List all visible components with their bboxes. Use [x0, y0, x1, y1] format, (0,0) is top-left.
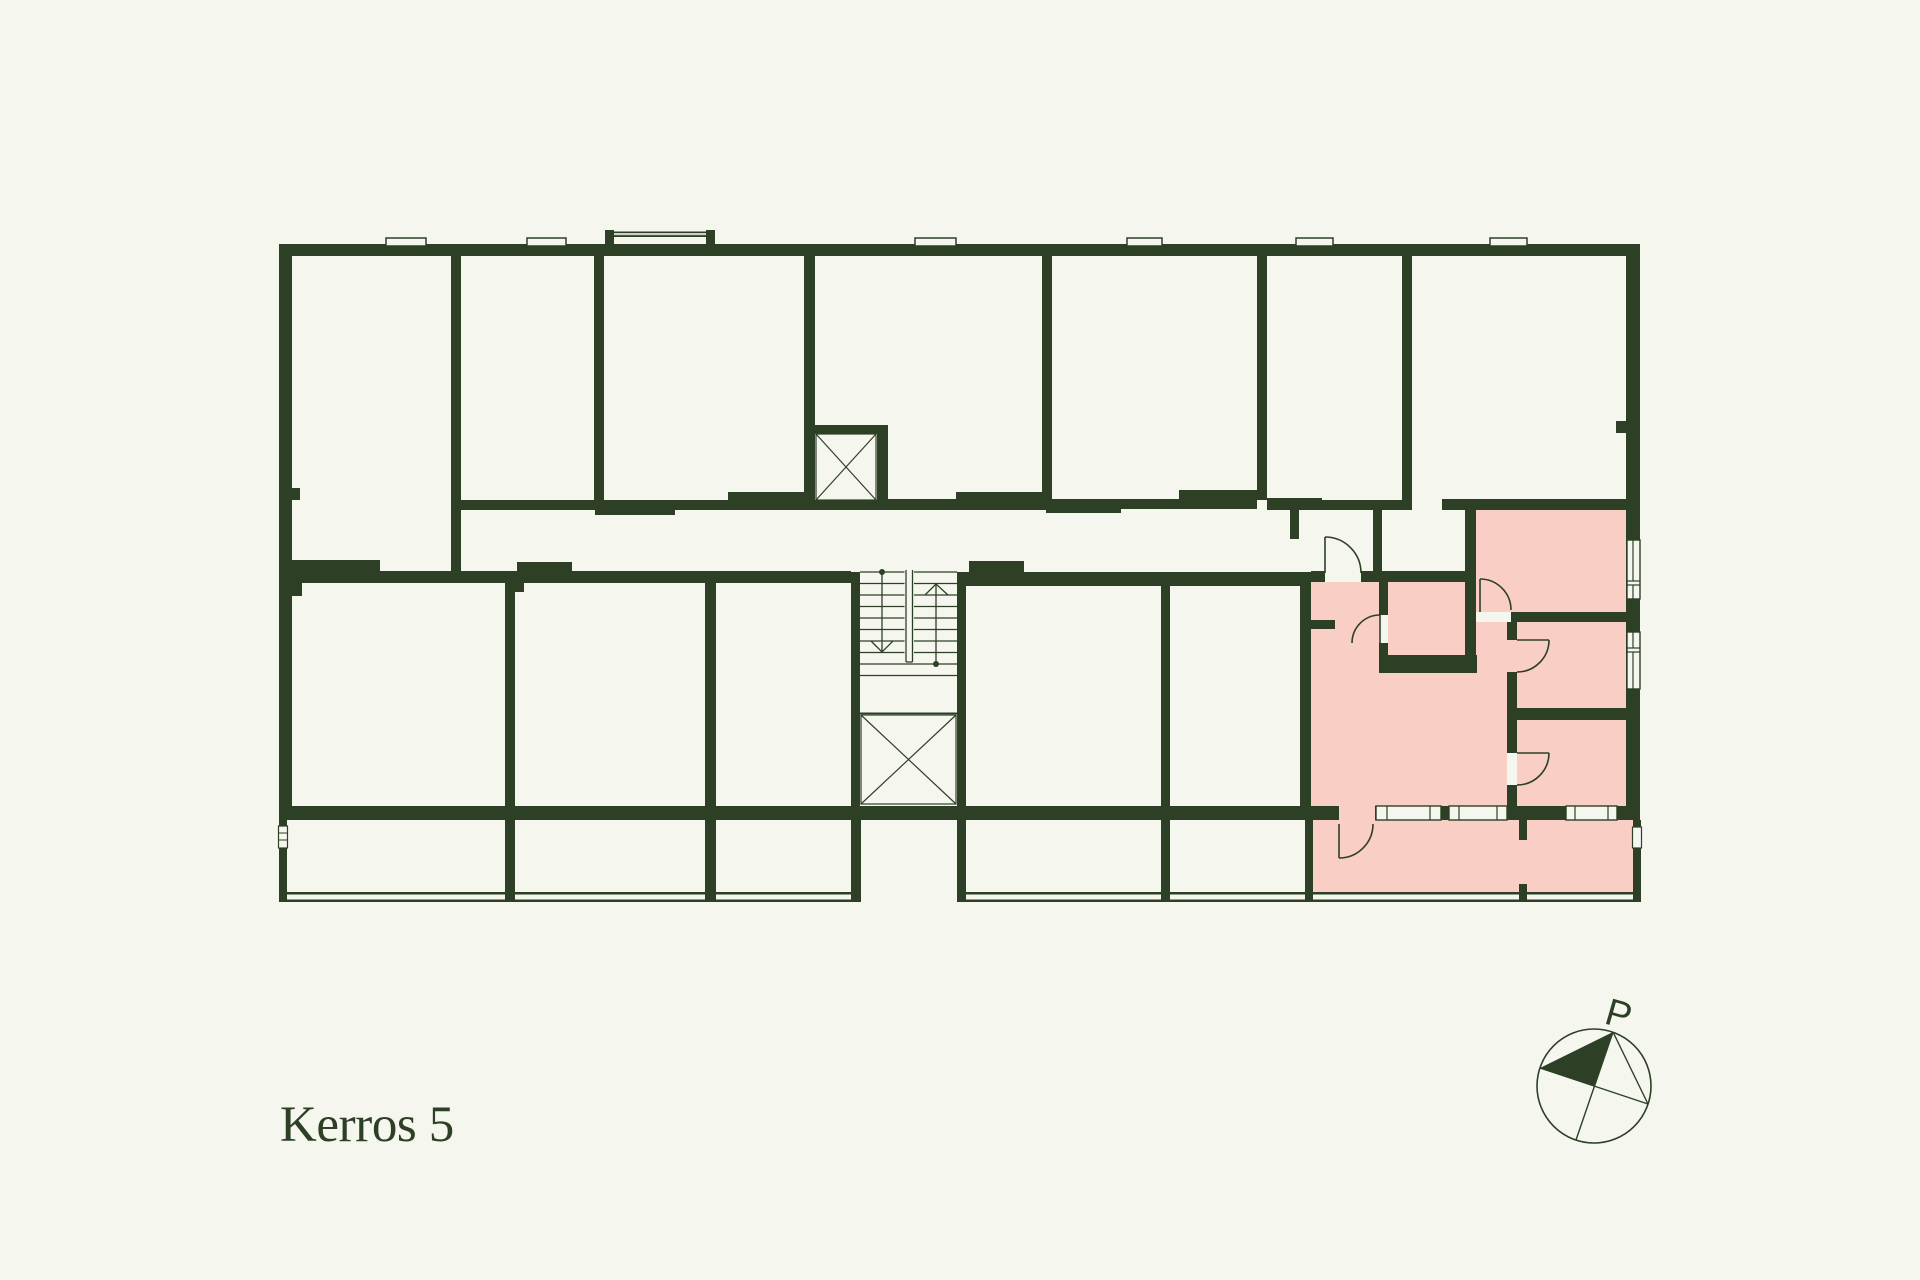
svg-text:Kerros 5: Kerros 5 [280, 1097, 454, 1153]
